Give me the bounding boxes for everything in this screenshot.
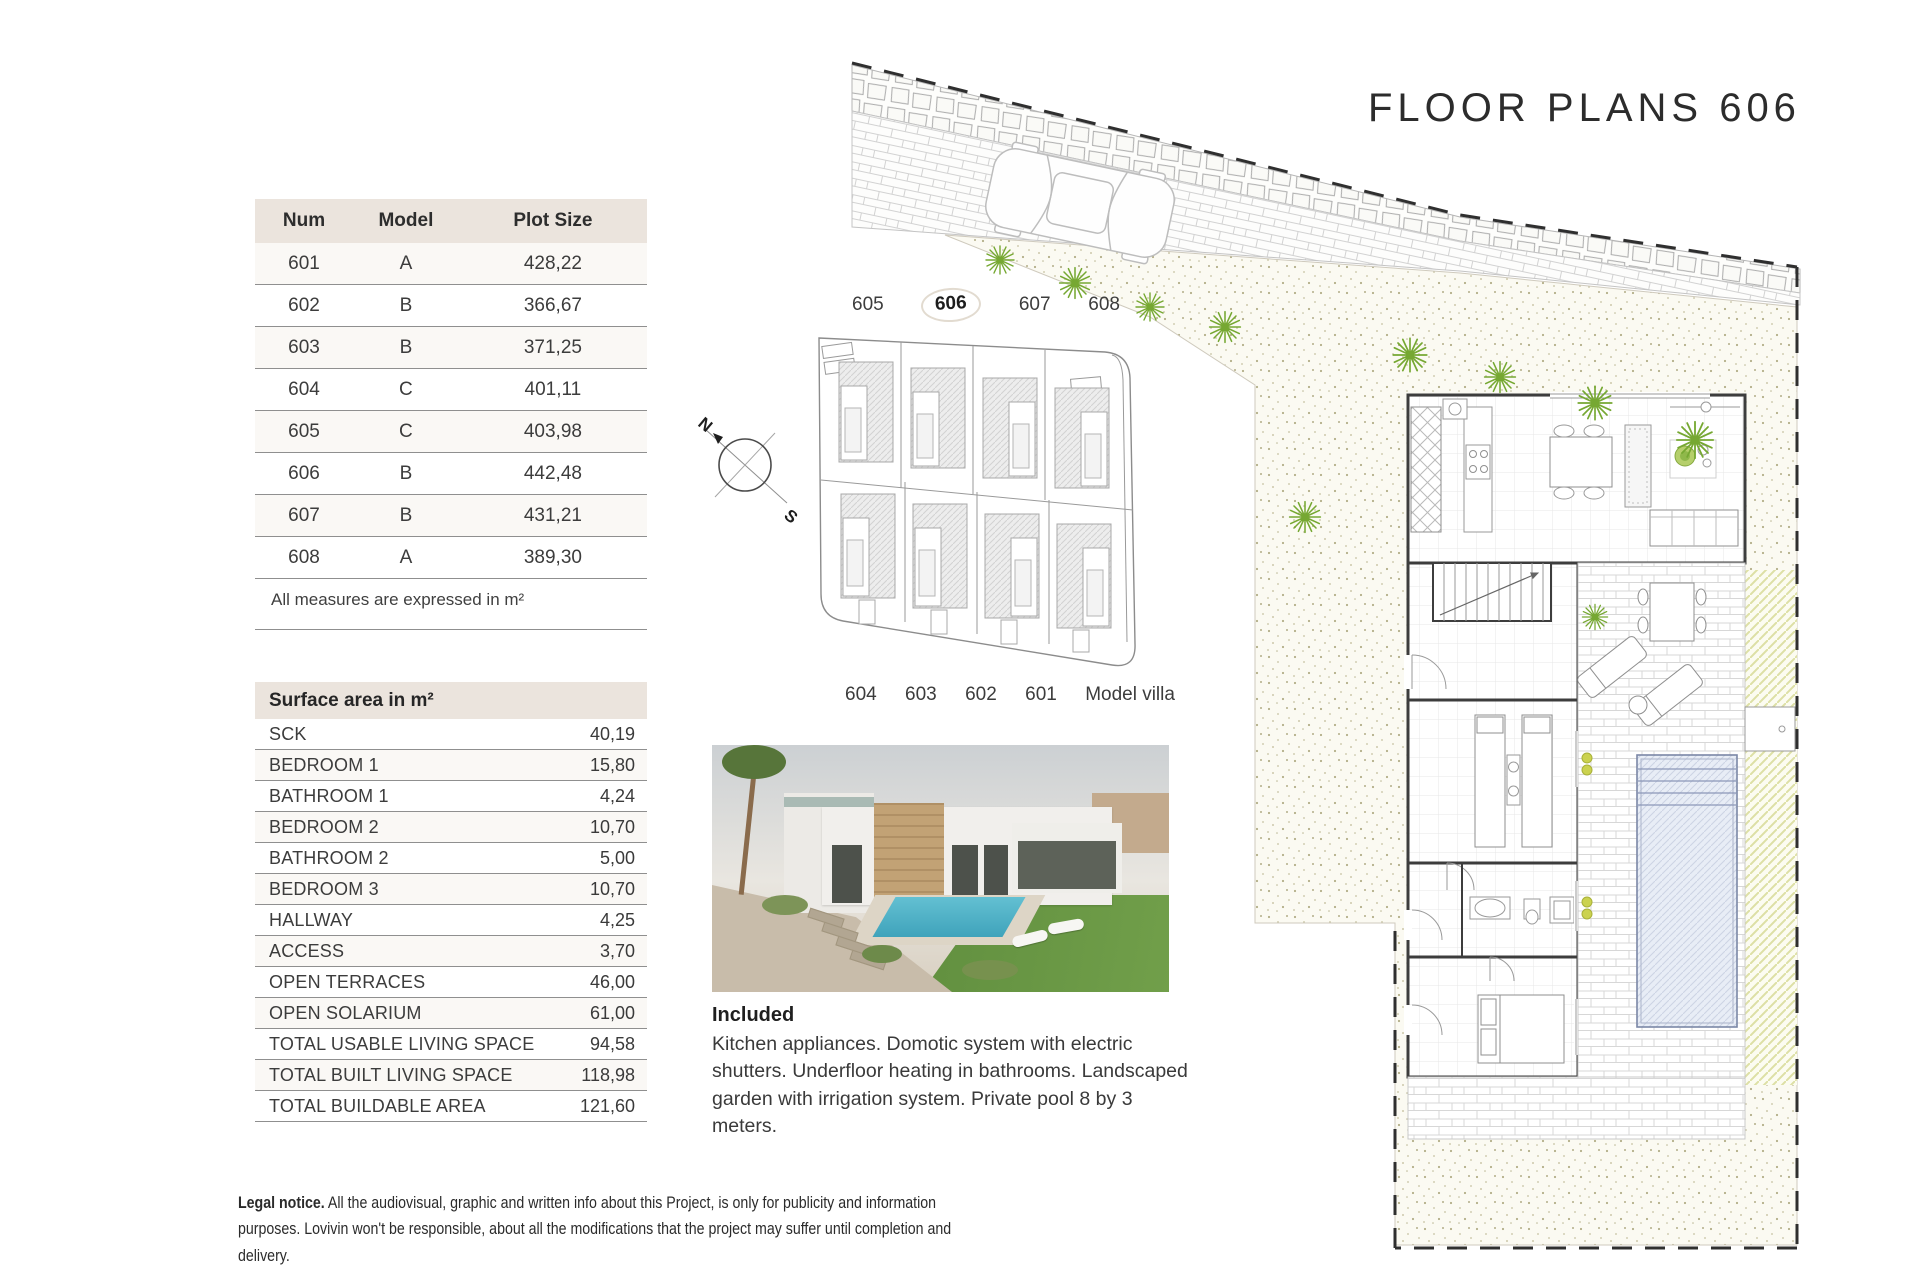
legal-notice: Legal notice. All the audiovisual, graph… bbox=[238, 1190, 960, 1269]
site-plan bbox=[815, 322, 1160, 692]
surface-table-header: Surface area in m² bbox=[255, 682, 647, 719]
lawn-hatch-strip bbox=[1745, 570, 1797, 1085]
surface-area-table: Surface area in m² SCK 40,19 BEDROOM 1 1… bbox=[255, 682, 647, 1122]
table-row: 605 C 403,98 bbox=[255, 411, 647, 453]
plot-label-603: 603 bbox=[905, 684, 937, 706]
walkway-paving bbox=[1408, 1077, 1745, 1139]
measures-note: All measures are expressed in m² bbox=[255, 570, 647, 630]
legal-notice-label: Legal notice. bbox=[238, 1194, 325, 1212]
table-row: 604 C 401,11 bbox=[255, 369, 647, 411]
table-row: HALLWAY 4,25 bbox=[255, 905, 647, 936]
table-row: OPEN SOLARIUM 61,00 bbox=[255, 998, 647, 1029]
legal-notice-text: All the audiovisual, graphic and written… bbox=[238, 1194, 951, 1265]
plot-label-604: 604 bbox=[845, 684, 877, 706]
table-row: 607 B 431,21 bbox=[255, 495, 647, 537]
plot-label-606-highlighted: 606 bbox=[921, 286, 982, 323]
table-row: ACCESS 3,70 bbox=[255, 936, 647, 967]
table-row: BATHROOM 2 5,00 bbox=[255, 843, 647, 874]
villa-photo bbox=[712, 745, 1169, 992]
table-row: TOTAL USABLE LIVING SPACE 94,58 bbox=[255, 1029, 647, 1060]
table-row: TOTAL BUILT LIVING SPACE 118,98 bbox=[255, 1060, 647, 1091]
dining-table bbox=[1550, 437, 1612, 487]
table-row: OPEN TERRACES 46,00 bbox=[255, 967, 647, 998]
plot-label-601: 601 bbox=[1025, 684, 1057, 706]
table-row: TOTAL BUILDABLE AREA 121,60 bbox=[255, 1091, 647, 1122]
pool bbox=[1637, 755, 1737, 1027]
col-header-model: Model bbox=[353, 210, 459, 232]
table-row: 603 B 371,25 bbox=[255, 327, 647, 369]
plot-label-608: 608 bbox=[1088, 294, 1120, 316]
included-heading: Included bbox=[712, 1004, 1190, 1027]
col-header-plot-size: Plot Size bbox=[459, 210, 647, 232]
included-block: Included Kitchen appliances. Domotic sys… bbox=[712, 1004, 1190, 1140]
model-villa-label: Model villa bbox=[1085, 684, 1175, 706]
compass-south-label: S bbox=[780, 506, 801, 523]
site-plan-bottom-labels: 604 603 602 601 Model villa bbox=[845, 684, 1175, 706]
stairs bbox=[1433, 563, 1551, 621]
plot-table-header: Num Model Plot Size bbox=[255, 199, 647, 243]
page-title: FLOOR PLANS 606 bbox=[1368, 86, 1801, 131]
oven bbox=[1443, 399, 1467, 419]
plot-label-605: 605 bbox=[852, 294, 884, 316]
bedroom-3 bbox=[1478, 995, 1564, 1063]
table-row: BEDROOM 2 10,70 bbox=[255, 812, 647, 843]
table-row: SCK 40,19 bbox=[255, 719, 647, 750]
col-header-num: Num bbox=[255, 210, 353, 232]
table-row: BATHROOM 1 4,24 bbox=[255, 781, 647, 812]
plot-table: Num Model Plot Size 601 A 428,22 602 B 3… bbox=[255, 199, 647, 579]
site-plan-top-labels: 605 606 607 608 bbox=[852, 288, 1120, 322]
table-row: BEDROOM 1 15,80 bbox=[255, 750, 647, 781]
plot-label-607: 607 bbox=[1019, 294, 1051, 316]
table-row: 601 A 428,22 bbox=[255, 243, 647, 285]
plot-label-602: 602 bbox=[965, 684, 997, 706]
table-row: BEDROOM 3 10,70 bbox=[255, 874, 647, 905]
included-body: Kitchen appliances. Domotic system with … bbox=[712, 1031, 1190, 1140]
compass-icon: N S bbox=[683, 403, 803, 523]
wardrobe bbox=[1411, 407, 1441, 532]
table-row: 606 B 442,48 bbox=[255, 453, 647, 495]
compass-north-label: N bbox=[694, 414, 716, 436]
outdoor-shower bbox=[1745, 707, 1795, 751]
table-row: 602 B 366,67 bbox=[255, 285, 647, 327]
